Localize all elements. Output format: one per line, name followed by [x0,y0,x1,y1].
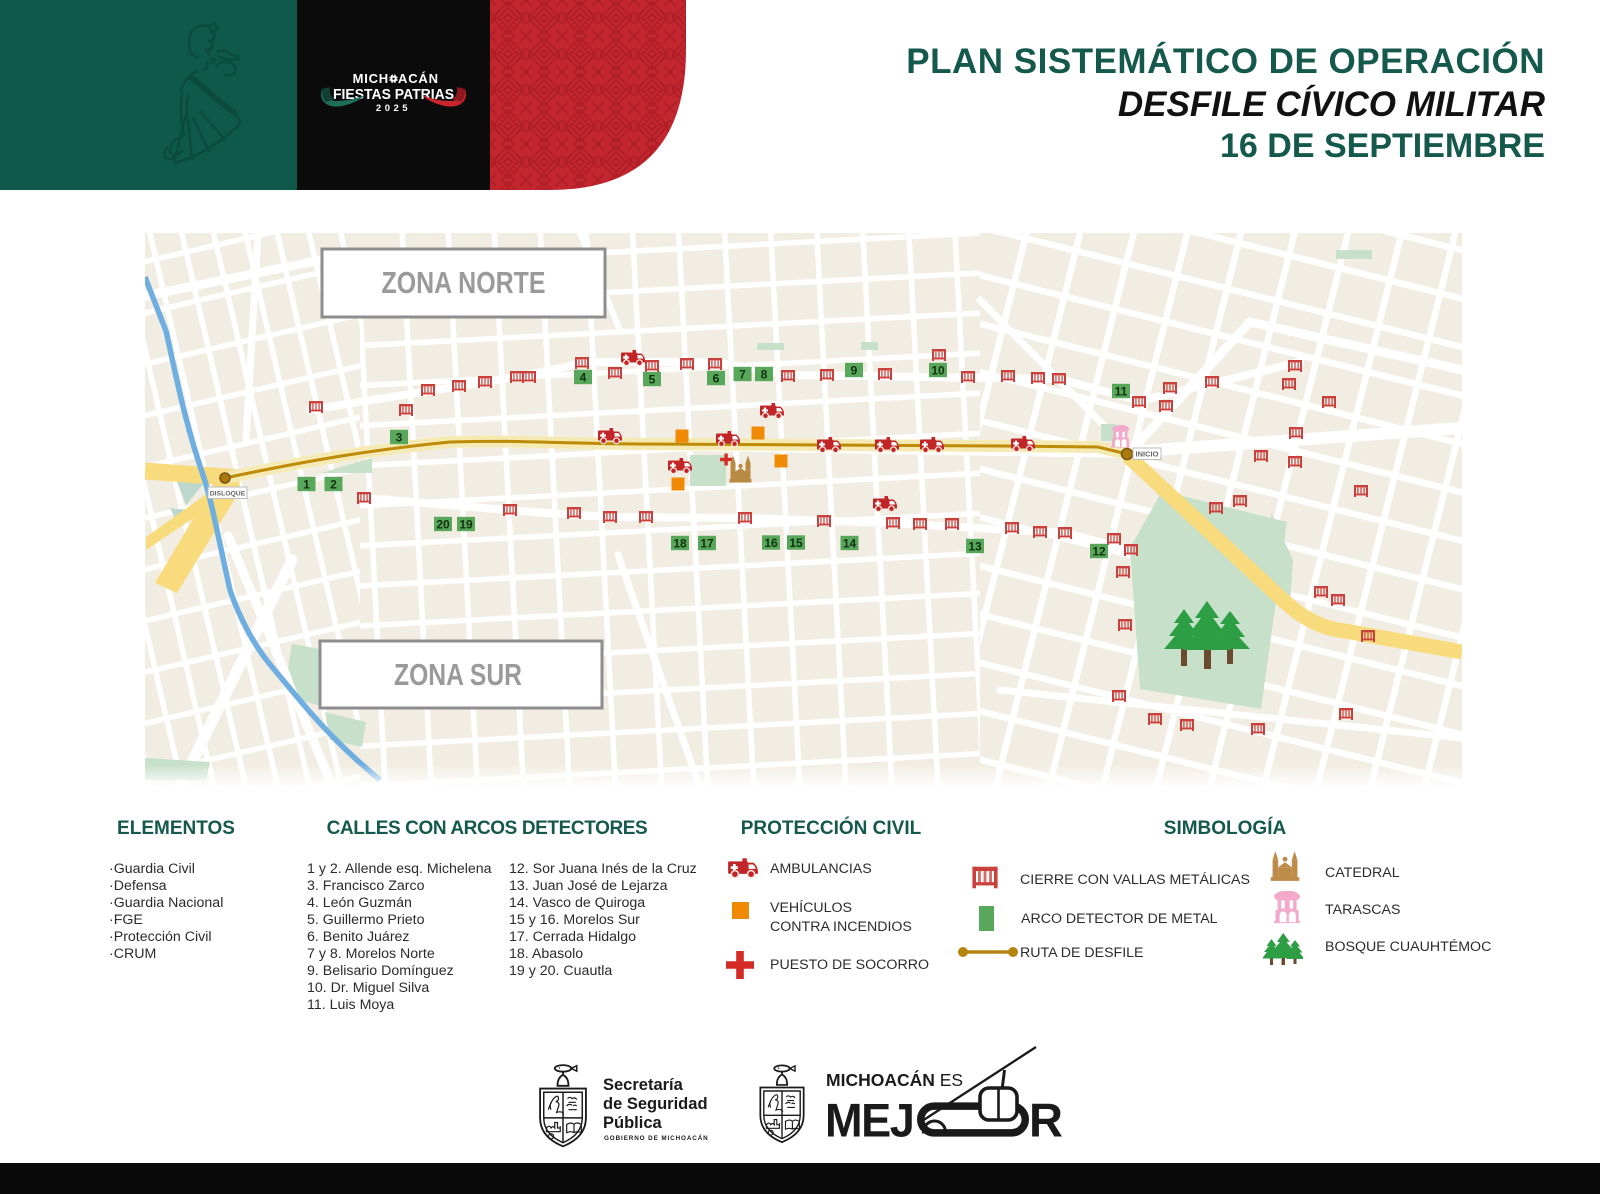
svg-text:9: 9 [851,364,858,378]
svg-text:20: 20 [436,518,450,532]
svg-text:2: 2 [330,478,337,492]
svg-text:INICIO: INICIO [1136,450,1159,459]
svg-text:17: 17 [700,537,714,551]
svg-text:DISLOQUE: DISLOQUE [210,491,246,498]
svg-text:5: 5 [649,373,656,387]
svg-text:19: 19 [459,518,473,532]
svg-text:R: R [1029,1094,1063,1146]
svg-text:18: 18 [673,537,687,551]
svg-text:ZONA SUR: ZONA SUR [394,657,522,692]
svg-text:10: 10 [931,364,945,378]
svg-text:15: 15 [789,536,803,550]
svg-text:16: 16 [764,536,778,550]
svg-text:6: 6 [713,372,720,386]
svg-text:MEJ: MEJ [825,1094,913,1145]
svg-text:3: 3 [396,431,403,445]
svg-text:8: 8 [761,368,768,382]
svg-text:2025: 2025 [376,103,411,114]
svg-text:4: 4 [580,371,587,385]
svg-text:ZONA NORTE: ZONA NORTE [382,265,546,300]
svg-text:ACÁN: ACÁN [398,71,439,86]
svg-text:MICH: MICH [353,71,389,86]
svg-text:1: 1 [303,478,310,492]
svg-text:11: 11 [1115,385,1128,399]
svg-text:13: 13 [968,540,982,554]
svg-text:14: 14 [843,537,857,551]
svg-text:7: 7 [739,368,746,382]
svg-text:12: 12 [1092,545,1106,559]
